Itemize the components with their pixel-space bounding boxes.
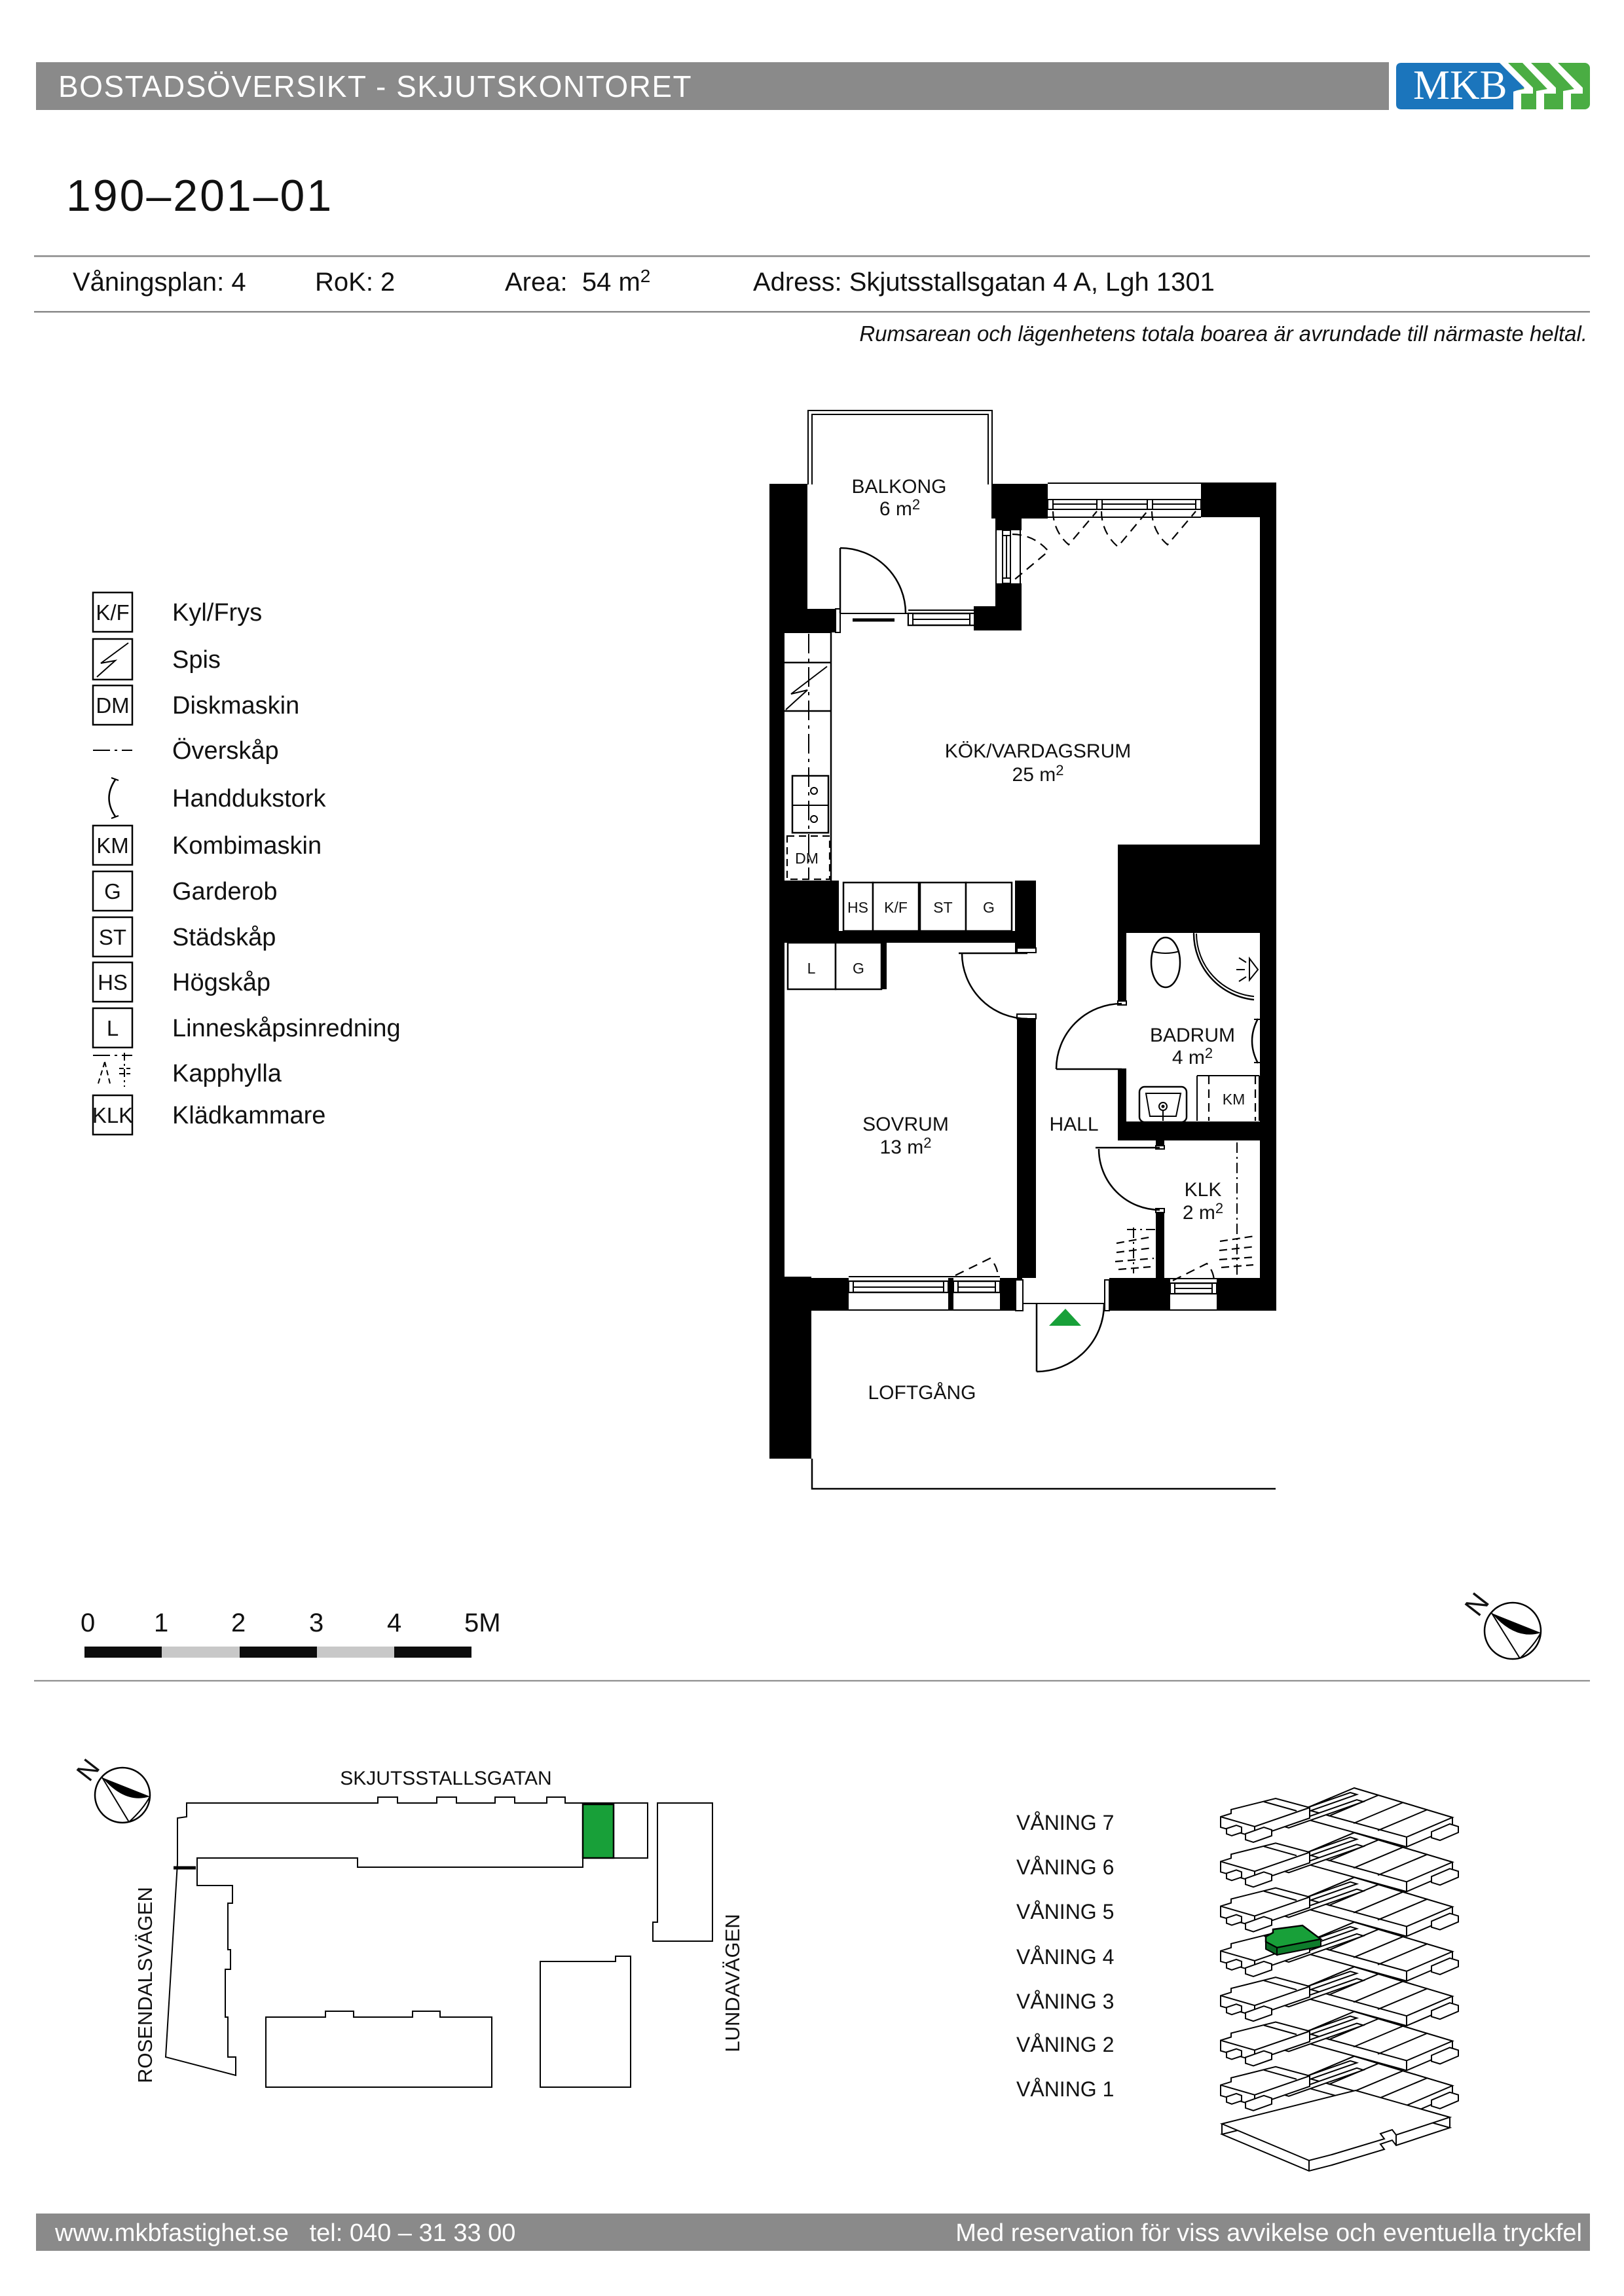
svg-text:HS: HS bbox=[847, 899, 868, 916]
svg-text:VÅNING 5: VÅNING 5 bbox=[1016, 1900, 1114, 1923]
svg-text:4 m2: 4 m2 bbox=[1172, 1045, 1213, 1068]
svg-text:Linneskåpsinredning: Linneskåpsinredning bbox=[172, 1015, 401, 1042]
svg-text:2: 2 bbox=[231, 1609, 246, 1637]
svg-text:K/F: K/F bbox=[96, 600, 129, 625]
svg-text:LUNDAVÄGEN: LUNDAVÄGEN bbox=[721, 1914, 744, 2052]
svg-text:VÅNING 7: VÅNING 7 bbox=[1016, 1811, 1114, 1834]
svg-text:Kapphylla: Kapphylla bbox=[172, 1060, 282, 1087]
svg-text:Städskåp: Städskåp bbox=[172, 924, 276, 951]
svg-text:VÅNING 6: VÅNING 6 bbox=[1016, 1855, 1114, 1879]
svg-text:ST: ST bbox=[99, 925, 126, 949]
svg-text:DM: DM bbox=[795, 850, 819, 867]
svg-text:G: G bbox=[853, 960, 864, 977]
svg-text:G: G bbox=[104, 879, 121, 903]
svg-text:SKJUTSSTALLSGATAN: SKJUTSSTALLSGATAN bbox=[340, 1768, 551, 1789]
svg-text:RoK: 2: RoK: 2 bbox=[315, 268, 395, 297]
svg-text:Högskåp: Högskåp bbox=[172, 969, 270, 996]
svg-text:Kyl/Frys: Kyl/Frys bbox=[172, 599, 262, 627]
svg-text:Diskmaskin: Diskmaskin bbox=[172, 692, 299, 720]
svg-text:www.mkbfastighet.se tel: 040: www.mkbfastighet.se tel: 040 – 31 33 00 bbox=[54, 2219, 515, 2247]
svg-text:KM: KM bbox=[1223, 1091, 1246, 1108]
svg-text:25 m2: 25 m2 bbox=[1012, 762, 1064, 786]
svg-text:VÅNING 4: VÅNING 4 bbox=[1016, 1945, 1114, 1969]
svg-text:Kombimaskin: Kombimaskin bbox=[172, 832, 322, 860]
svg-text:LOFTGÅNG: LOFTGÅNG bbox=[868, 1382, 976, 1404]
svg-text:Våningsplan: 4: Våningsplan: 4 bbox=[73, 268, 246, 297]
svg-text:L: L bbox=[107, 1016, 119, 1040]
svg-text:G: G bbox=[983, 899, 995, 916]
svg-text:K/F: K/F bbox=[884, 899, 908, 916]
svg-text:Garderob: Garderob bbox=[172, 878, 278, 905]
svg-text:HS: HS bbox=[98, 970, 128, 994]
svg-text:3: 3 bbox=[309, 1609, 323, 1637]
svg-text:Överskåp: Överskåp bbox=[172, 737, 279, 765]
svg-text:0: 0 bbox=[81, 1609, 95, 1637]
svg-text:ROSENDALSVÄGEN: ROSENDALSVÄGEN bbox=[134, 1887, 157, 2083]
svg-text:VÅNING 3: VÅNING 3 bbox=[1016, 1990, 1114, 2013]
svg-text:Area: 54 m2: Area: 54 m2 bbox=[505, 266, 650, 297]
svg-text:VÅNING 2: VÅNING 2 bbox=[1016, 2033, 1114, 2056]
svg-text:13 m2: 13 m2 bbox=[880, 1135, 932, 1158]
svg-text:2 m2: 2 m2 bbox=[1183, 1200, 1223, 1224]
svg-text:Adress: Skjutsstallsgatan 4 A,: Adress: Skjutsstallsgatan 4 A, Lgh 1301 bbox=[753, 268, 1215, 297]
svg-text:KÖK/VARDAGSRUM: KÖK/VARDAGSRUM bbox=[945, 740, 1132, 762]
svg-text:BALKONG: BALKONG bbox=[851, 476, 946, 498]
svg-text:KM: KM bbox=[96, 833, 129, 858]
svg-text:BADRUM: BADRUM bbox=[1150, 1025, 1235, 1046]
svg-text:KLK: KLK bbox=[92, 1103, 133, 1127]
svg-text:Med reservation för viss avvik: Med reservation för viss avvikelse och e… bbox=[955, 2219, 1582, 2247]
svg-text:MKB: MKB bbox=[1413, 62, 1507, 108]
svg-text:L: L bbox=[807, 960, 816, 977]
svg-text:Handdukstork: Handdukstork bbox=[172, 785, 326, 812]
svg-text:190–201–01: 190–201–01 bbox=[66, 171, 333, 221]
svg-text:6 m2: 6 m2 bbox=[879, 496, 920, 520]
svg-text:4: 4 bbox=[387, 1609, 401, 1637]
svg-text:ST: ST bbox=[933, 899, 952, 916]
svg-text:1: 1 bbox=[154, 1609, 168, 1637]
svg-text:VÅNING 1: VÅNING 1 bbox=[1016, 2077, 1114, 2101]
svg-text:BOSTADSÖVERSIKT - SKJUTSKONTOR: BOSTADSÖVERSIKT - SKJUTSKONTORET bbox=[58, 69, 692, 103]
svg-text:Spis: Spis bbox=[172, 646, 221, 674]
svg-text:5M: 5M bbox=[464, 1609, 501, 1637]
svg-text:DM: DM bbox=[96, 693, 129, 718]
svg-text:Rumsarean och lägenhetens tota: Rumsarean och lägenhetens totala boarea … bbox=[859, 321, 1587, 346]
svg-text:HALL: HALL bbox=[1049, 1114, 1098, 1135]
svg-text:KLK: KLK bbox=[1185, 1179, 1222, 1201]
svg-text:SOVRUM: SOVRUM bbox=[862, 1114, 949, 1135]
svg-text:Klädkammare: Klädkammare bbox=[172, 1102, 325, 1129]
